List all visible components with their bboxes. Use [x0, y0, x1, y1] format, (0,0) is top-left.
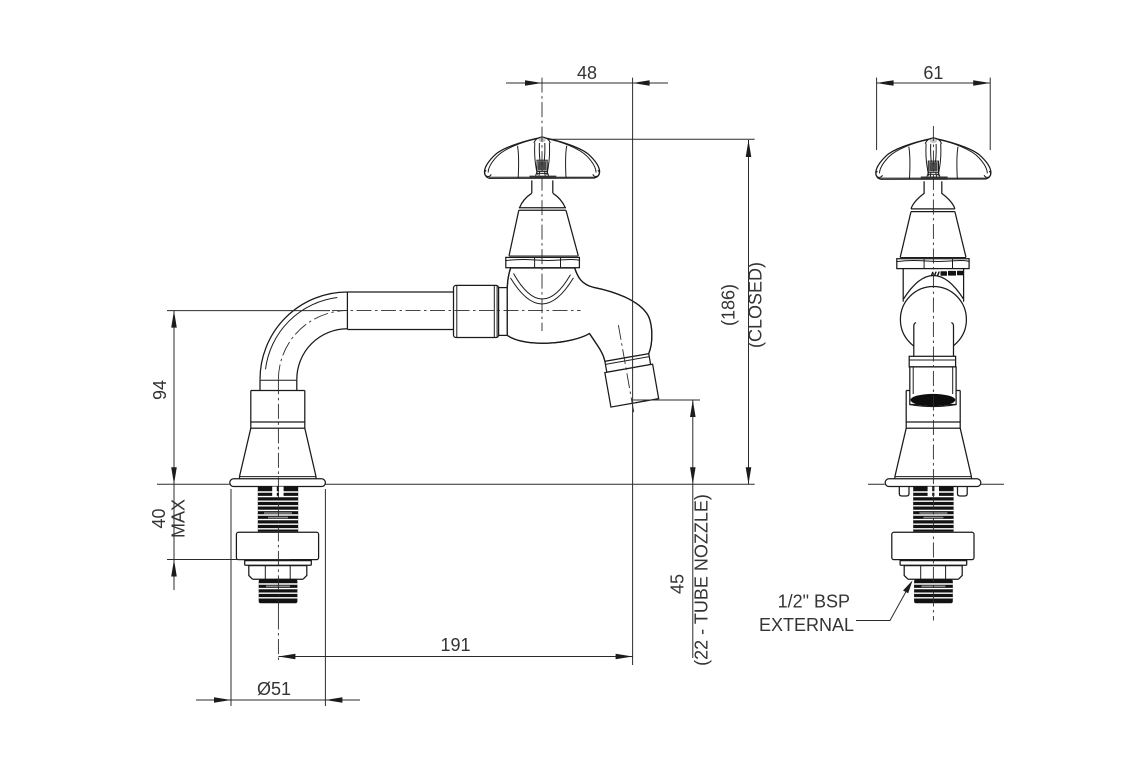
svg-text:48: 48 [577, 63, 597, 83]
svg-text:1/2" BSP: 1/2" BSP [778, 592, 850, 612]
svg-text:(CLOSED): (CLOSED) [746, 262, 766, 348]
svg-text:45: 45 [668, 574, 688, 594]
svg-text:191: 191 [440, 635, 470, 655]
svg-text:EXTERNAL: EXTERNAL [759, 615, 854, 635]
svg-text:Ø51: Ø51 [257, 679, 291, 699]
svg-text:94: 94 [150, 380, 170, 400]
svg-text:40: 40 [149, 508, 169, 528]
svg-text:(22 - TUBE NOZZLE): (22 - TUBE NOZZLE) [692, 494, 712, 666]
svg-text:MAX: MAX [169, 499, 189, 538]
svg-text:61: 61 [923, 63, 943, 83]
svg-text:(186): (186) [719, 284, 739, 326]
